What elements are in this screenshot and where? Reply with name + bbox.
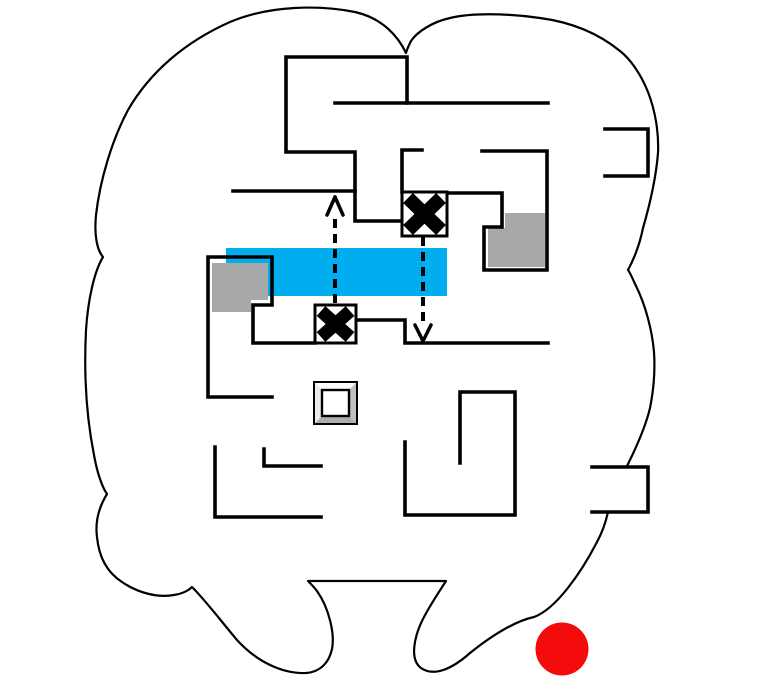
arrowhead xyxy=(423,325,431,341)
cave-outline xyxy=(85,8,658,673)
arrowhead xyxy=(327,197,335,215)
bevel-inner-face xyxy=(322,390,349,416)
game-map xyxy=(0,0,765,680)
arrowhead xyxy=(415,325,423,341)
red-dot-marker xyxy=(536,623,589,676)
gray-block-right xyxy=(488,213,545,267)
border-notch-mask-bottom-right xyxy=(592,467,648,512)
beveled-block-icon xyxy=(314,382,357,424)
map-canvas xyxy=(0,0,765,680)
x-marker-lower xyxy=(315,305,356,343)
x-marker-upper xyxy=(402,192,447,236)
arrowhead xyxy=(335,197,343,215)
